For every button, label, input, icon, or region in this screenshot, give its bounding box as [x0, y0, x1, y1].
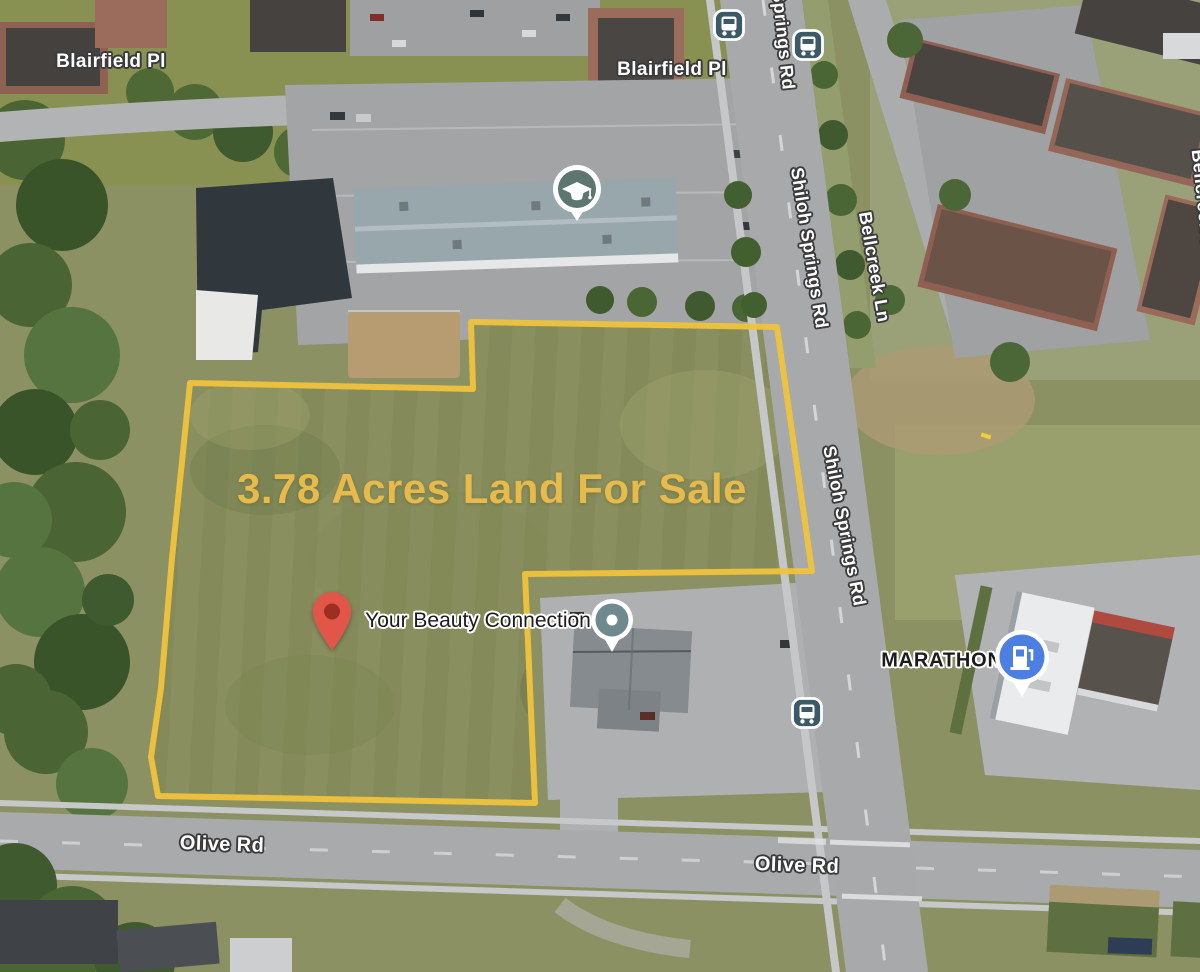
road-label-blairfield-pl-east: Blairfield Pl	[617, 59, 727, 81]
gas-station-store	[1077, 611, 1175, 712]
bus-stop-icon-northeast[interactable]	[791, 28, 825, 62]
poi-label-marathon: MARATHON	[881, 650, 1003, 673]
road-label-olive-rd-west: Olive Rd	[179, 832, 264, 858]
sale-title: 3.78 Acres Land For Sale	[237, 465, 747, 513]
poi-label-your-beauty-connection: Your Beauty Connection	[365, 609, 591, 633]
poi-dot-icon	[607, 615, 618, 626]
beauty-connection-poi-marker[interactable]	[589, 598, 635, 656]
retail-building	[354, 177, 679, 273]
dirt-patch	[348, 312, 460, 378]
satellite-map-view[interactable]: Blairfield Pl Blairfield Pl Springs Rd S…	[0, 0, 1200, 972]
red-map-pin[interactable]	[310, 590, 354, 652]
school-marker[interactable]	[551, 163, 603, 225]
pin-dot-icon	[324, 604, 340, 620]
marathon-gas-station-marker[interactable]	[993, 629, 1051, 701]
road-label-blairfield-pl-west: Blairfield Pl	[56, 51, 166, 73]
road-label-olive-rd-east: Olive Rd	[754, 853, 839, 879]
bus-stop-icon-north[interactable]	[712, 8, 746, 42]
bus-stop-icon-south[interactable]	[790, 696, 824, 730]
